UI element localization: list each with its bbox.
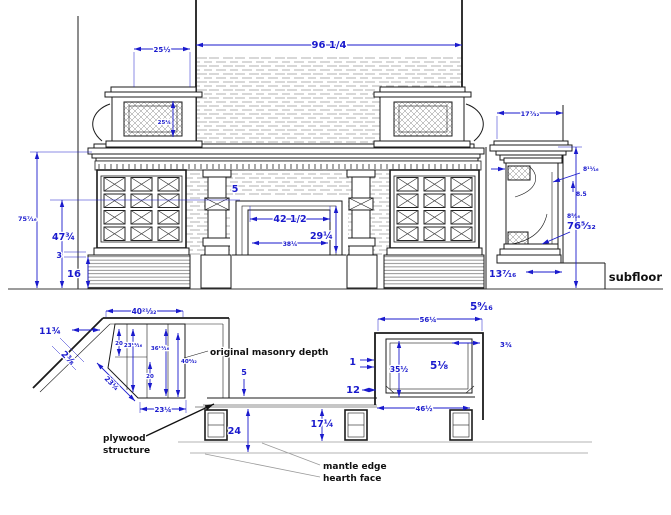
hearth-step: [545, 263, 605, 289]
dim-masonry-thickness: 5: [241, 368, 247, 377]
dim-panel-e: 20: [146, 374, 154, 380]
cabinet-right: [387, 170, 482, 255]
dim-hearth-depth-plan: 24: [228, 426, 242, 437]
dim-height-to-opening: 47¾: [52, 232, 75, 243]
dim-structure-thickness: 5¹⁄₈: [430, 360, 449, 372]
dim-shelf-depth: 17⁷⁄₃₂: [521, 110, 540, 118]
dim-mantle-depth: 17¼: [310, 419, 333, 430]
dim-inner-depth: 35½: [390, 365, 408, 374]
dim-pedestal-width: 25½: [154, 46, 171, 54]
plan-left-view: [33, 318, 377, 405]
plywood-note-line1: plywood: [103, 434, 146, 444]
pedestal-right: [374, 87, 483, 147]
dim-wall-thickness: 2⅜: [58, 350, 76, 368]
dim-panel-d: 40⁹⁄₃₂: [181, 358, 197, 365]
hearth-face-note: hearth face: [323, 474, 381, 484]
dim-wall-thickness-right: 1: [349, 357, 356, 368]
dims-plan-left: 40²¹⁄₃₂ 11¾ 2⅜ 20 23¹¹⁄₁₆ 36¹¹⁄₁₆ 40⁹⁄₃₂…: [39, 307, 328, 456]
dim-panel-c: 36¹¹⁄₁₆: [151, 345, 170, 352]
dim-panel-b: 23¹¹⁄₁₆: [124, 342, 143, 349]
pedestal-left: [93, 87, 202, 147]
plywood-note-line2: structure: [103, 446, 150, 456]
dim-surround-leg: 5: [232, 184, 239, 195]
hearth-base: [88, 255, 484, 288]
mantle-edge-leader: [262, 443, 320, 465]
plan-leg-right: [450, 410, 472, 440]
dim-base-height: 16: [67, 269, 81, 280]
dim-overall-height: 76⁵⁄₃₂: [567, 221, 596, 232]
masonry-note-leader: [184, 351, 208, 358]
dim-masonry-width: 38¼: [283, 241, 298, 248]
plan-leg-middle: [345, 410, 367, 440]
mantle-edge-note: mantle edge: [323, 462, 387, 472]
dim-opening-height: 29¼: [310, 231, 333, 242]
side-section: [490, 105, 605, 289]
hearth-face-leader: [205, 454, 320, 477]
dim-side-gap: 12: [346, 385, 360, 396]
dim-return-width: 11¾: [39, 327, 61, 337]
dim-wall-offset: 5⁹⁄₁₆: [470, 301, 493, 313]
dim-opening-width: 42 1/2: [273, 214, 306, 225]
dim-frieze-depth: 8¹¹⁄₁₆: [583, 166, 599, 173]
side-leg: [497, 158, 562, 263]
dim-hearth-depth-front: 13⁷⁄₁₆: [489, 269, 516, 280]
dim-overall-width: 96 1/4: [312, 40, 347, 51]
drawing-canvas: 96 1/4 25½ 25¼ 75⁷⁄₁₆ 47¾ 3 16 5 42 1/2 …: [0, 0, 671, 515]
dim-inner-width: 46½: [416, 405, 433, 413]
subfloor-label: subfloor: [609, 270, 663, 284]
dim-corner-offset: 3¾: [500, 341, 512, 349]
plan-leg-left: [205, 410, 227, 440]
dim-bracket-offset: 8.5: [576, 191, 587, 198]
dim-pedestal-height: 25¼: [158, 120, 172, 126]
dim-reveal: 3: [56, 251, 62, 260]
cabinet-left: [94, 170, 189, 255]
dim-cabinet-width: 40²¹⁄₃₂: [132, 307, 157, 316]
dim-panel-a: 20: [115, 341, 123, 347]
mantle-shelf: [88, 144, 484, 170]
masonry-note: original masonry depth: [210, 348, 328, 358]
side-shelf: [490, 141, 572, 160]
dim-outer-width: 56¼: [420, 316, 437, 324]
drawing-page: 96 1/4 25½ 25¼ 75⁷⁄₁₆ 47¾ 3 16 5 42 1/2 …: [0, 0, 671, 515]
dim-height-to-shelf: 75⁷⁄₁₆: [18, 215, 37, 223]
dim-front-face: 23¼: [155, 406, 172, 414]
dim-leg-depth: 8⁵⁄₁₆: [567, 213, 580, 220]
